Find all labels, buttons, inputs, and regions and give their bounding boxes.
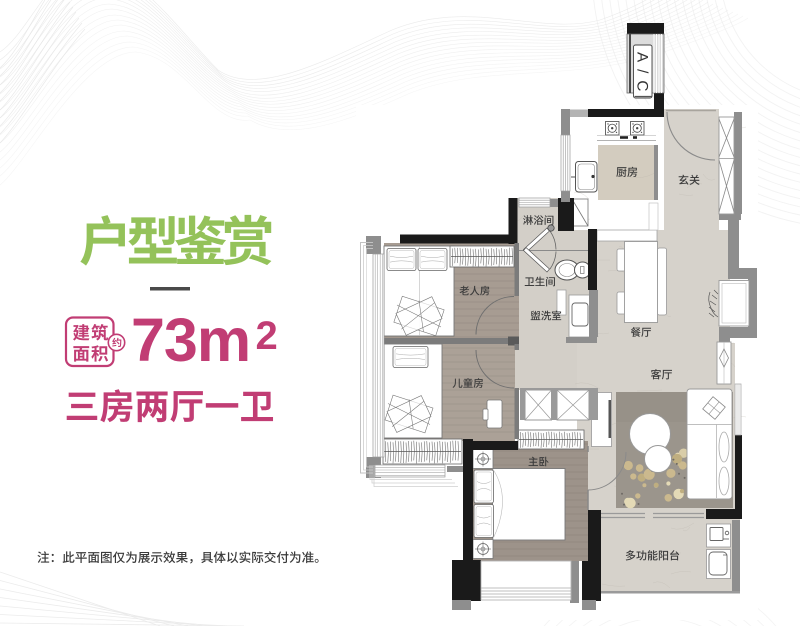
svg-text:2: 2 (256, 314, 278, 358)
svg-text:73m: 73m (131, 306, 250, 374)
